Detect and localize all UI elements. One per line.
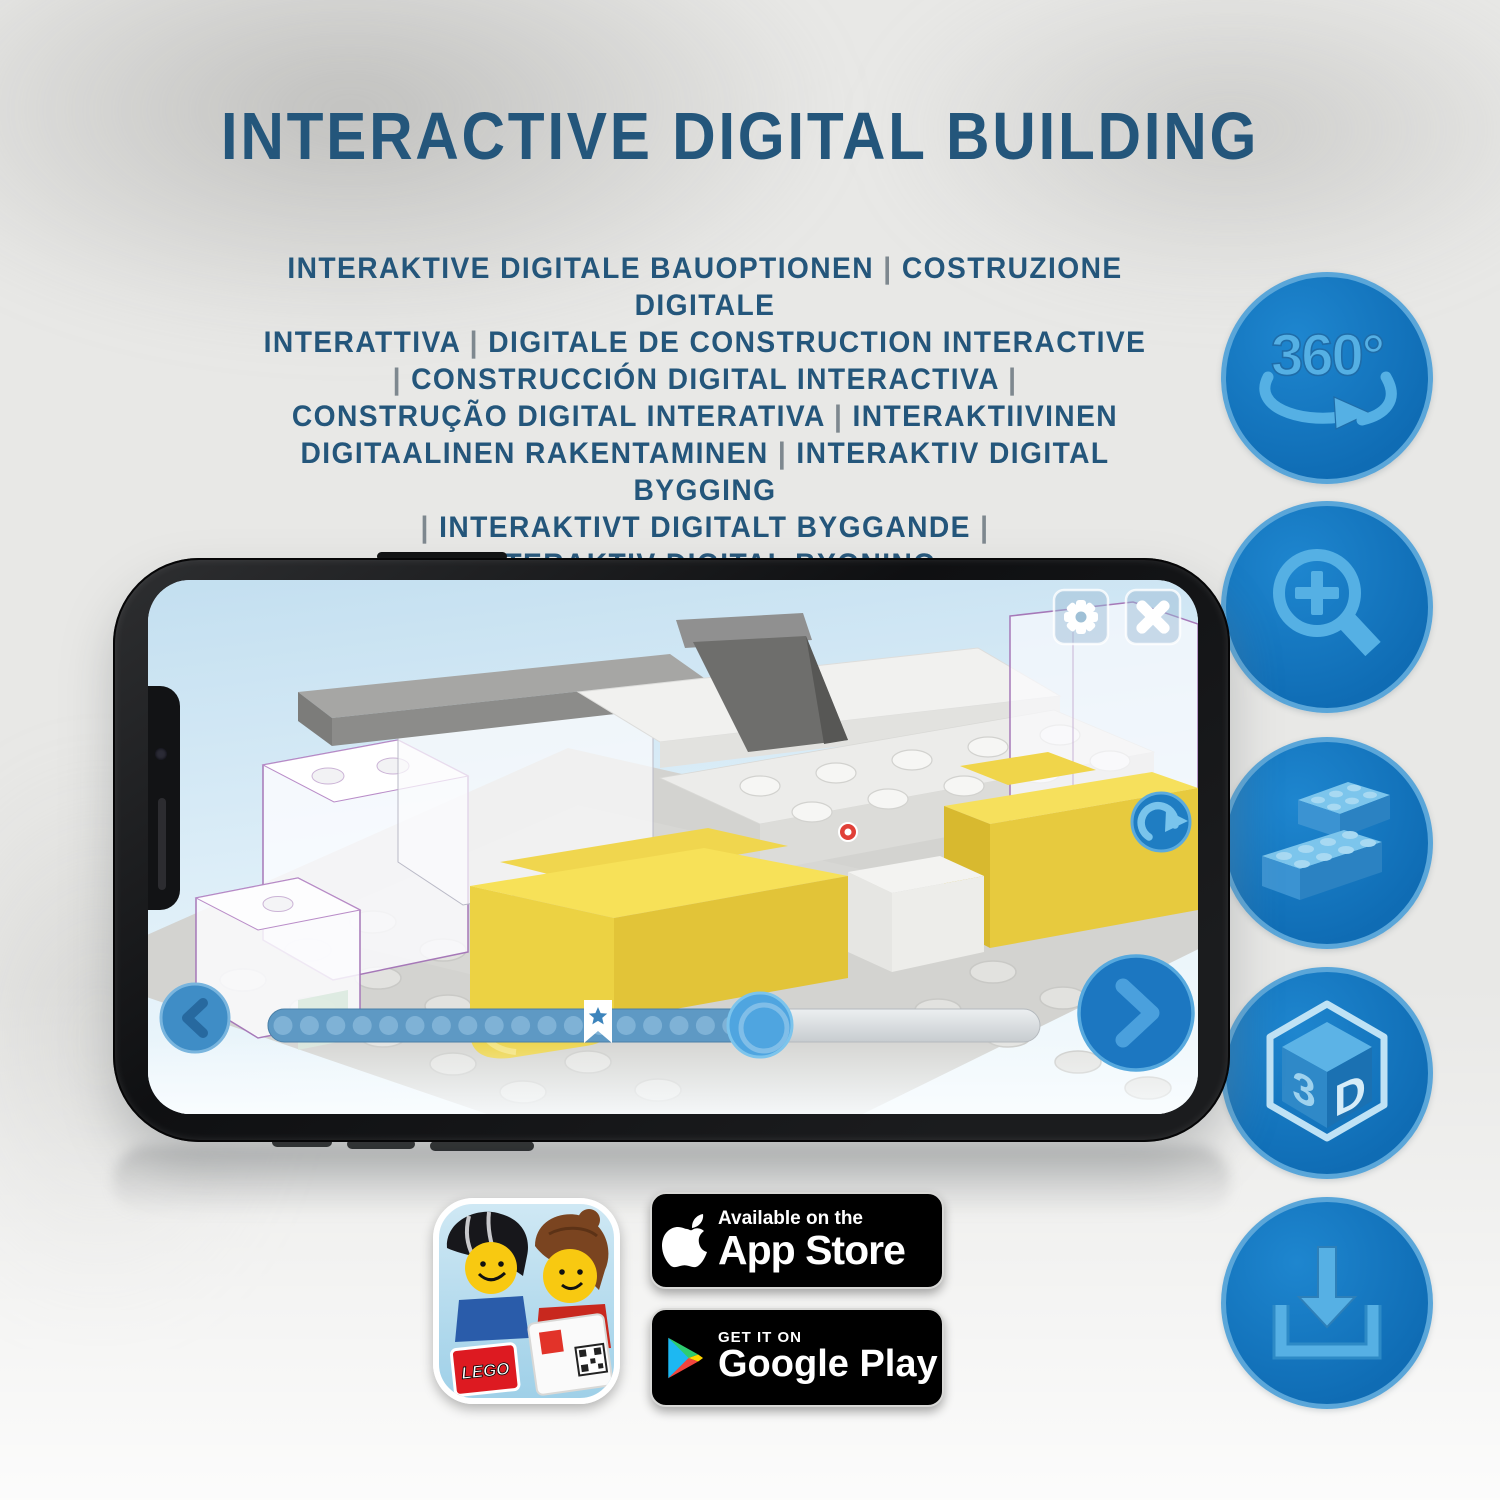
gear-icon: [1064, 600, 1098, 634]
speaker-slit: [158, 798, 166, 890]
app-store-name: App Store: [718, 1229, 905, 1272]
magnifier-plus-icon: [1257, 537, 1397, 677]
google-play-name: Google Play: [718, 1345, 938, 1385]
boy-face: [465, 1242, 517, 1294]
close-button[interactable]: [1126, 590, 1180, 644]
separator: |: [421, 511, 440, 544]
qr-code: [575, 1344, 607, 1376]
google-play-badge[interactable]: GET IT ON Google Play: [650, 1308, 944, 1407]
rotate-view-button[interactable]: [1132, 793, 1190, 851]
app-3d-viewport[interactable]: [148, 580, 1198, 1114]
lego-bricks-icon: [1252, 772, 1402, 914]
360-degrees-icon: 360°: [1248, 315, 1406, 441]
subtitle-line: INTERATTIVA | DIGITALE DE CONSTRUCTION I…: [235, 324, 1175, 361]
3d-cube-icon: 3 D: [1256, 998, 1398, 1148]
lego-app-icon[interactable]: LEGO: [433, 1198, 620, 1404]
subtitle-line: | CONSTRUCCIÓN DIGITAL INTERACTIVA |: [235, 361, 1175, 398]
app-store-tagline: Available on the: [718, 1209, 905, 1229]
separator: |: [825, 400, 853, 433]
white-brick-center: [848, 856, 984, 972]
phone: [113, 558, 1230, 1142]
instruction-card: [528, 1314, 613, 1396]
page-title: INTERACTIVE DIGITAL BUILDING: [74, 98, 1406, 175]
google-play-logo-icon: [652, 1334, 718, 1382]
red-roundel: [839, 823, 857, 841]
feature-download-icon: [1221, 1197, 1433, 1409]
foreground-fade: [148, 1035, 1198, 1114]
lego-logo: LEGO: [451, 1343, 519, 1395]
feature-360-rotation-icon: 360°: [1221, 272, 1433, 484]
boy-torso: [455, 1296, 529, 1342]
camera-icon: [155, 748, 167, 760]
slider-thumb[interactable]: [728, 993, 792, 1057]
subtitle: INTERAKTIVE DIGITALE BAUOPTIONEN | COSTR…: [235, 250, 1175, 583]
building-instructions-scene: [148, 580, 1198, 1114]
previous-step-button[interactable]: [161, 984, 229, 1052]
separator: |: [999, 363, 1018, 396]
feature-bricks-icon: [1221, 737, 1433, 949]
app-store-badge[interactable]: Available on the App Store: [650, 1192, 944, 1289]
360-label: 360°: [1271, 323, 1383, 388]
feature-3d-view-icon: 3 D: [1221, 967, 1433, 1179]
subtitle-line: INTERAKTIVE DIGITALE BAUOPTIONEN | COSTR…: [235, 250, 1175, 324]
subtitle-line: DIGITAALINEN RAKENTAMINEN | INTERAKTIV D…: [235, 435, 1175, 509]
phone-notch: [148, 686, 180, 910]
separator: |: [460, 326, 488, 359]
separator: |: [769, 437, 797, 470]
subtitle-line: | INTERAKTIVT DIGITALT BYGGANDE |: [235, 509, 1175, 546]
download-icon: [1261, 1237, 1393, 1369]
lego-minifigures-art: LEGO: [439, 1204, 614, 1398]
feature-zoom-icon: [1221, 501, 1433, 713]
separator: |: [971, 511, 990, 544]
girl-face: [543, 1249, 597, 1303]
settings-button[interactable]: [1054, 590, 1108, 644]
subtitle-line: CONSTRUÇÃO DIGITAL INTERATIVA | INTERAKT…: [235, 398, 1175, 435]
next-step-button[interactable]: [1079, 956, 1193, 1070]
power-button: [430, 1141, 534, 1151]
separator: |: [874, 252, 902, 285]
apple-logo-icon: [652, 1214, 718, 1268]
cube-face-3: 3: [1292, 1062, 1315, 1119]
separator: |: [393, 363, 412, 396]
